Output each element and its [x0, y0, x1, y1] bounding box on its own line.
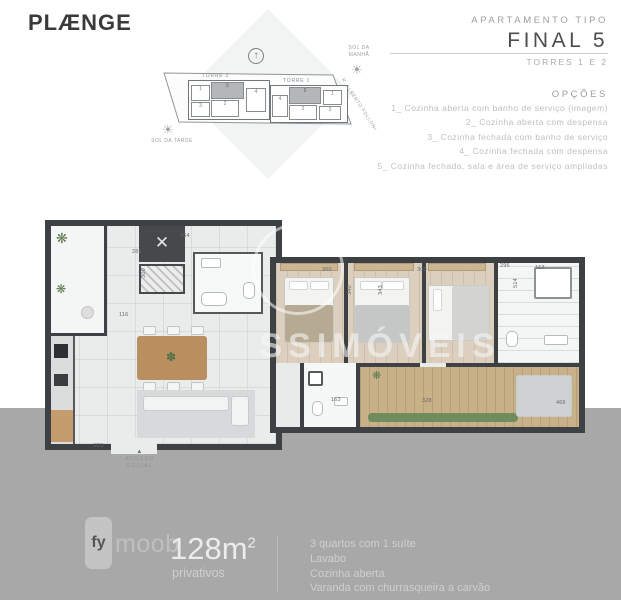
shower-box — [534, 267, 572, 299]
unit-cell: 1 — [323, 90, 342, 105]
dimension-label: 281 — [132, 249, 142, 255]
unit-cell: 1 — [191, 85, 210, 101]
bedroom-divider-wall — [344, 263, 348, 363]
bathroom-core — [193, 252, 263, 314]
dimension-label: 300 — [322, 267, 332, 273]
dimension-label: 221 — [94, 443, 104, 449]
social-bathroom — [300, 363, 360, 427]
torre1-label: TORRE 1 — [283, 78, 310, 84]
option-item: 5_ Cozinha fechada, sala e área de servi… — [308, 159, 608, 173]
unit-cell: 4 — [272, 95, 288, 117]
sofa — [143, 396, 229, 411]
bed-bedroom1 — [284, 277, 334, 343]
toilet — [243, 282, 255, 299]
varanda-deck: ❋ — [360, 367, 579, 427]
plant-icon: ❋ — [372, 369, 381, 382]
footer-divider — [277, 536, 278, 593]
suite-bathroom — [498, 263, 579, 363]
sun-morning-label: SOL DA MANHÃ — [338, 45, 380, 58]
dimension-label: 163 — [331, 397, 341, 403]
dimension-label: 343 — [378, 285, 384, 295]
kitchen-cabinet — [51, 410, 73, 442]
unit-cell: 3 — [191, 102, 210, 117]
dining-table: ✽ — [137, 336, 207, 380]
social-access-label: ▲ ACESSO SOCIAL — [110, 449, 170, 469]
dimension-label: 300 — [417, 267, 427, 273]
bedroom-wing: ❋ — [270, 257, 585, 433]
bed-suite — [428, 285, 490, 341]
dining-chair — [143, 326, 156, 335]
dimension-label: 116 — [119, 312, 128, 318]
torre2-footprint: 1 5 4 3 2 — [188, 80, 270, 120]
unit-cell-highlight: 5 — [211, 82, 244, 99]
flyer-page: PLÆNGE APARTAMENTO TIPO FINAL 5 TORRES 1… — [0, 0, 621, 600]
unit-cell: 4 — [246, 88, 266, 112]
living-wing: ❋ ❋ ✕ ✽ — [45, 220, 282, 450]
sun-afternoon-label: SOL DA TARDE — [150, 138, 194, 145]
wardrobe — [428, 263, 486, 271]
dimension-label: 364 — [180, 233, 190, 239]
towers-subtitle: TORRES 1 E 2 — [527, 57, 608, 67]
bathtub — [201, 292, 227, 306]
toilet — [506, 331, 518, 347]
cooktop — [54, 374, 68, 386]
dimension-label: 296 — [500, 263, 510, 269]
planter-hedge — [368, 413, 518, 422]
page-title: FINAL 5 — [507, 29, 608, 53]
north-arrow-icon: ↑ — [248, 48, 264, 64]
unit-cell: 2 — [289, 105, 317, 120]
plant-icon: ❋ — [56, 282, 66, 296]
sun-morning-icon: ☀ — [351, 62, 363, 78]
bedroom-divider-wall — [422, 263, 426, 363]
kitchen-counter — [51, 336, 75, 444]
balcony-table — [81, 306, 94, 319]
feature-item: Varanda com churrasqueira a carvão — [310, 581, 490, 596]
dining-chair — [191, 326, 204, 335]
sun-afternoon-icon: ☀ — [162, 122, 174, 138]
dining-chair — [167, 326, 180, 335]
sink — [201, 258, 221, 268]
dimension-label: 340 — [347, 285, 353, 295]
title-divider — [390, 53, 608, 54]
dimension-label: 300 — [141, 268, 147, 278]
dimension-label: 328 — [422, 398, 432, 404]
side-balcony: ❋ ❋ — [51, 226, 107, 336]
unit-cell: 2 — [211, 100, 239, 117]
unit-cell-highlight: 5 — [289, 87, 321, 104]
wardrobe — [354, 263, 414, 271]
torre2-label: TORRE 2 — [202, 73, 229, 79]
sink — [544, 335, 568, 345]
unit-cell: 3 — [319, 106, 341, 120]
dimension-label: 163 — [535, 265, 545, 271]
plant-icon: ❋ — [56, 230, 68, 247]
dimension-label: 514 — [513, 278, 519, 288]
area-value: 128m2 — [170, 531, 256, 567]
features-list: 3 quartos com 1 suíte Lavabo Cozinha abe… — [310, 537, 490, 596]
options-title: OPÇÕES — [552, 89, 608, 100]
area-label: privativos — [172, 566, 225, 580]
oven — [54, 344, 68, 358]
toilet — [312, 401, 323, 416]
bedroom-divider-wall — [494, 263, 498, 363]
plant-icon: ✽ — [166, 350, 176, 364]
brand-logo: PLÆNGE — [28, 10, 132, 36]
floor-plan: ❋ ❋ ✕ ✽ — [40, 215, 590, 483]
feature-item: Lavabo — [310, 552, 490, 567]
torre1-footprint: 5 1 4 2 3 — [270, 85, 348, 123]
feature-item: Cozinha aberta — [310, 567, 490, 582]
fymoob-logo-icon: fy — [85, 517, 112, 569]
armchair — [231, 396, 249, 426]
elevator-shaft: ✕ — [139, 226, 185, 262]
dimension-label: 466 — [556, 400, 566, 406]
site-plan: ↑ TORRE 2 TORRE 1 1 5 4 3 2 5 1 4 2 3 SO… — [150, 42, 398, 156]
apartment-type-kicker: APARTAMENTO TIPO — [471, 15, 608, 26]
washer — [308, 371, 323, 386]
lounge-chair — [516, 375, 572, 417]
entry-arrow-icon: ▲ — [110, 449, 170, 456]
feature-item: 3 quartos com 1 suíte — [310, 537, 490, 552]
living-rug — [137, 390, 255, 438]
